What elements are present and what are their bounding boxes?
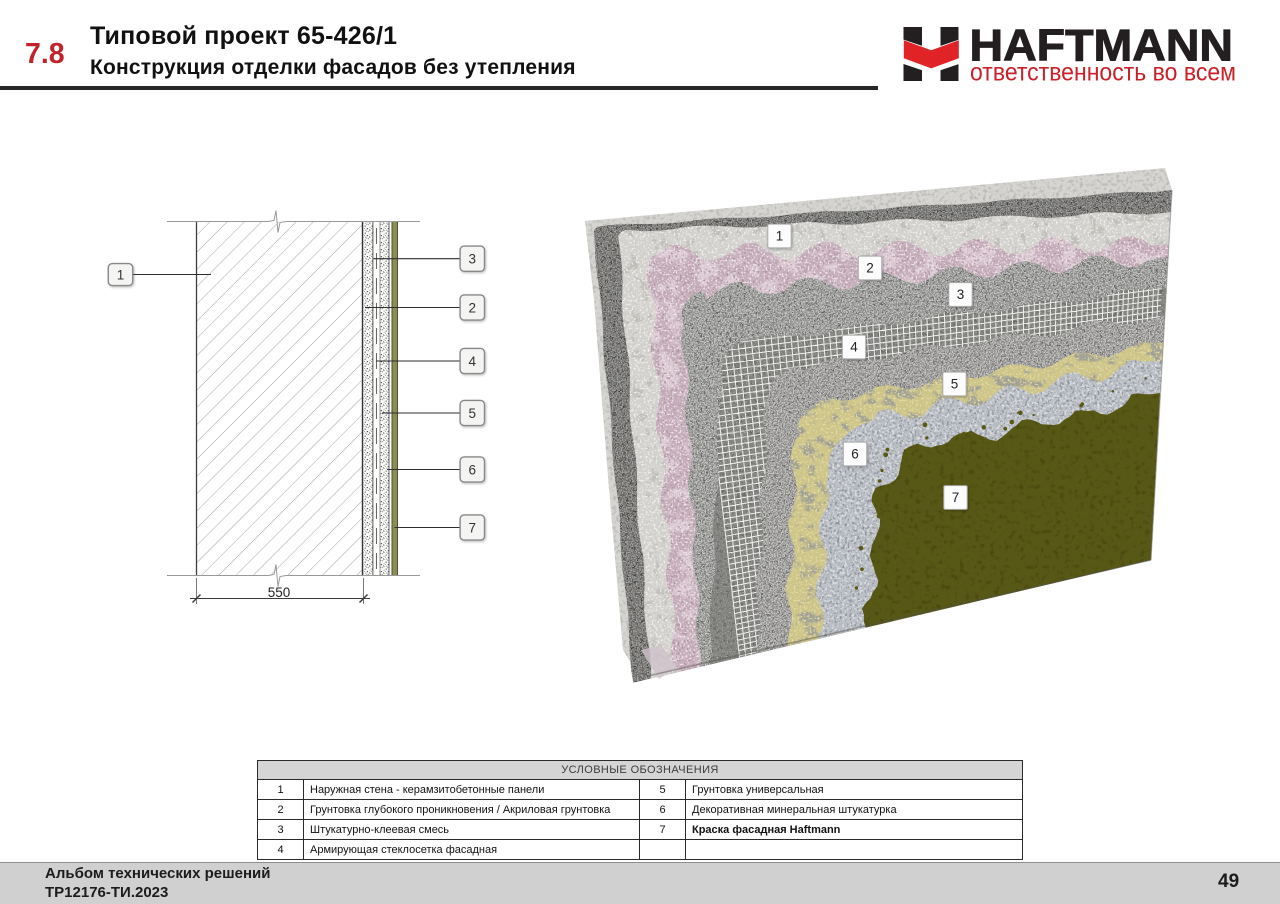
- svg-text:7: 7: [952, 490, 960, 505]
- svg-text:6: 6: [469, 462, 477, 477]
- svg-text:2: 2: [866, 261, 874, 276]
- svg-text:2: 2: [469, 300, 477, 315]
- svg-text:4: 4: [850, 340, 858, 355]
- svg-text:6: 6: [851, 447, 859, 462]
- svg-text:7: 7: [469, 520, 477, 535]
- svg-text:ответственность во всем: ответственность во всем: [970, 59, 1236, 87]
- svg-text:550: 550: [268, 585, 291, 600]
- svg-text:1: 1: [776, 229, 784, 244]
- svg-text:3: 3: [957, 287, 965, 302]
- svg-text:5: 5: [469, 406, 477, 421]
- svg-text:1: 1: [117, 267, 125, 282]
- svg-text:4: 4: [469, 354, 477, 369]
- svg-text:5: 5: [951, 377, 959, 392]
- svg-text:3: 3: [469, 252, 477, 267]
